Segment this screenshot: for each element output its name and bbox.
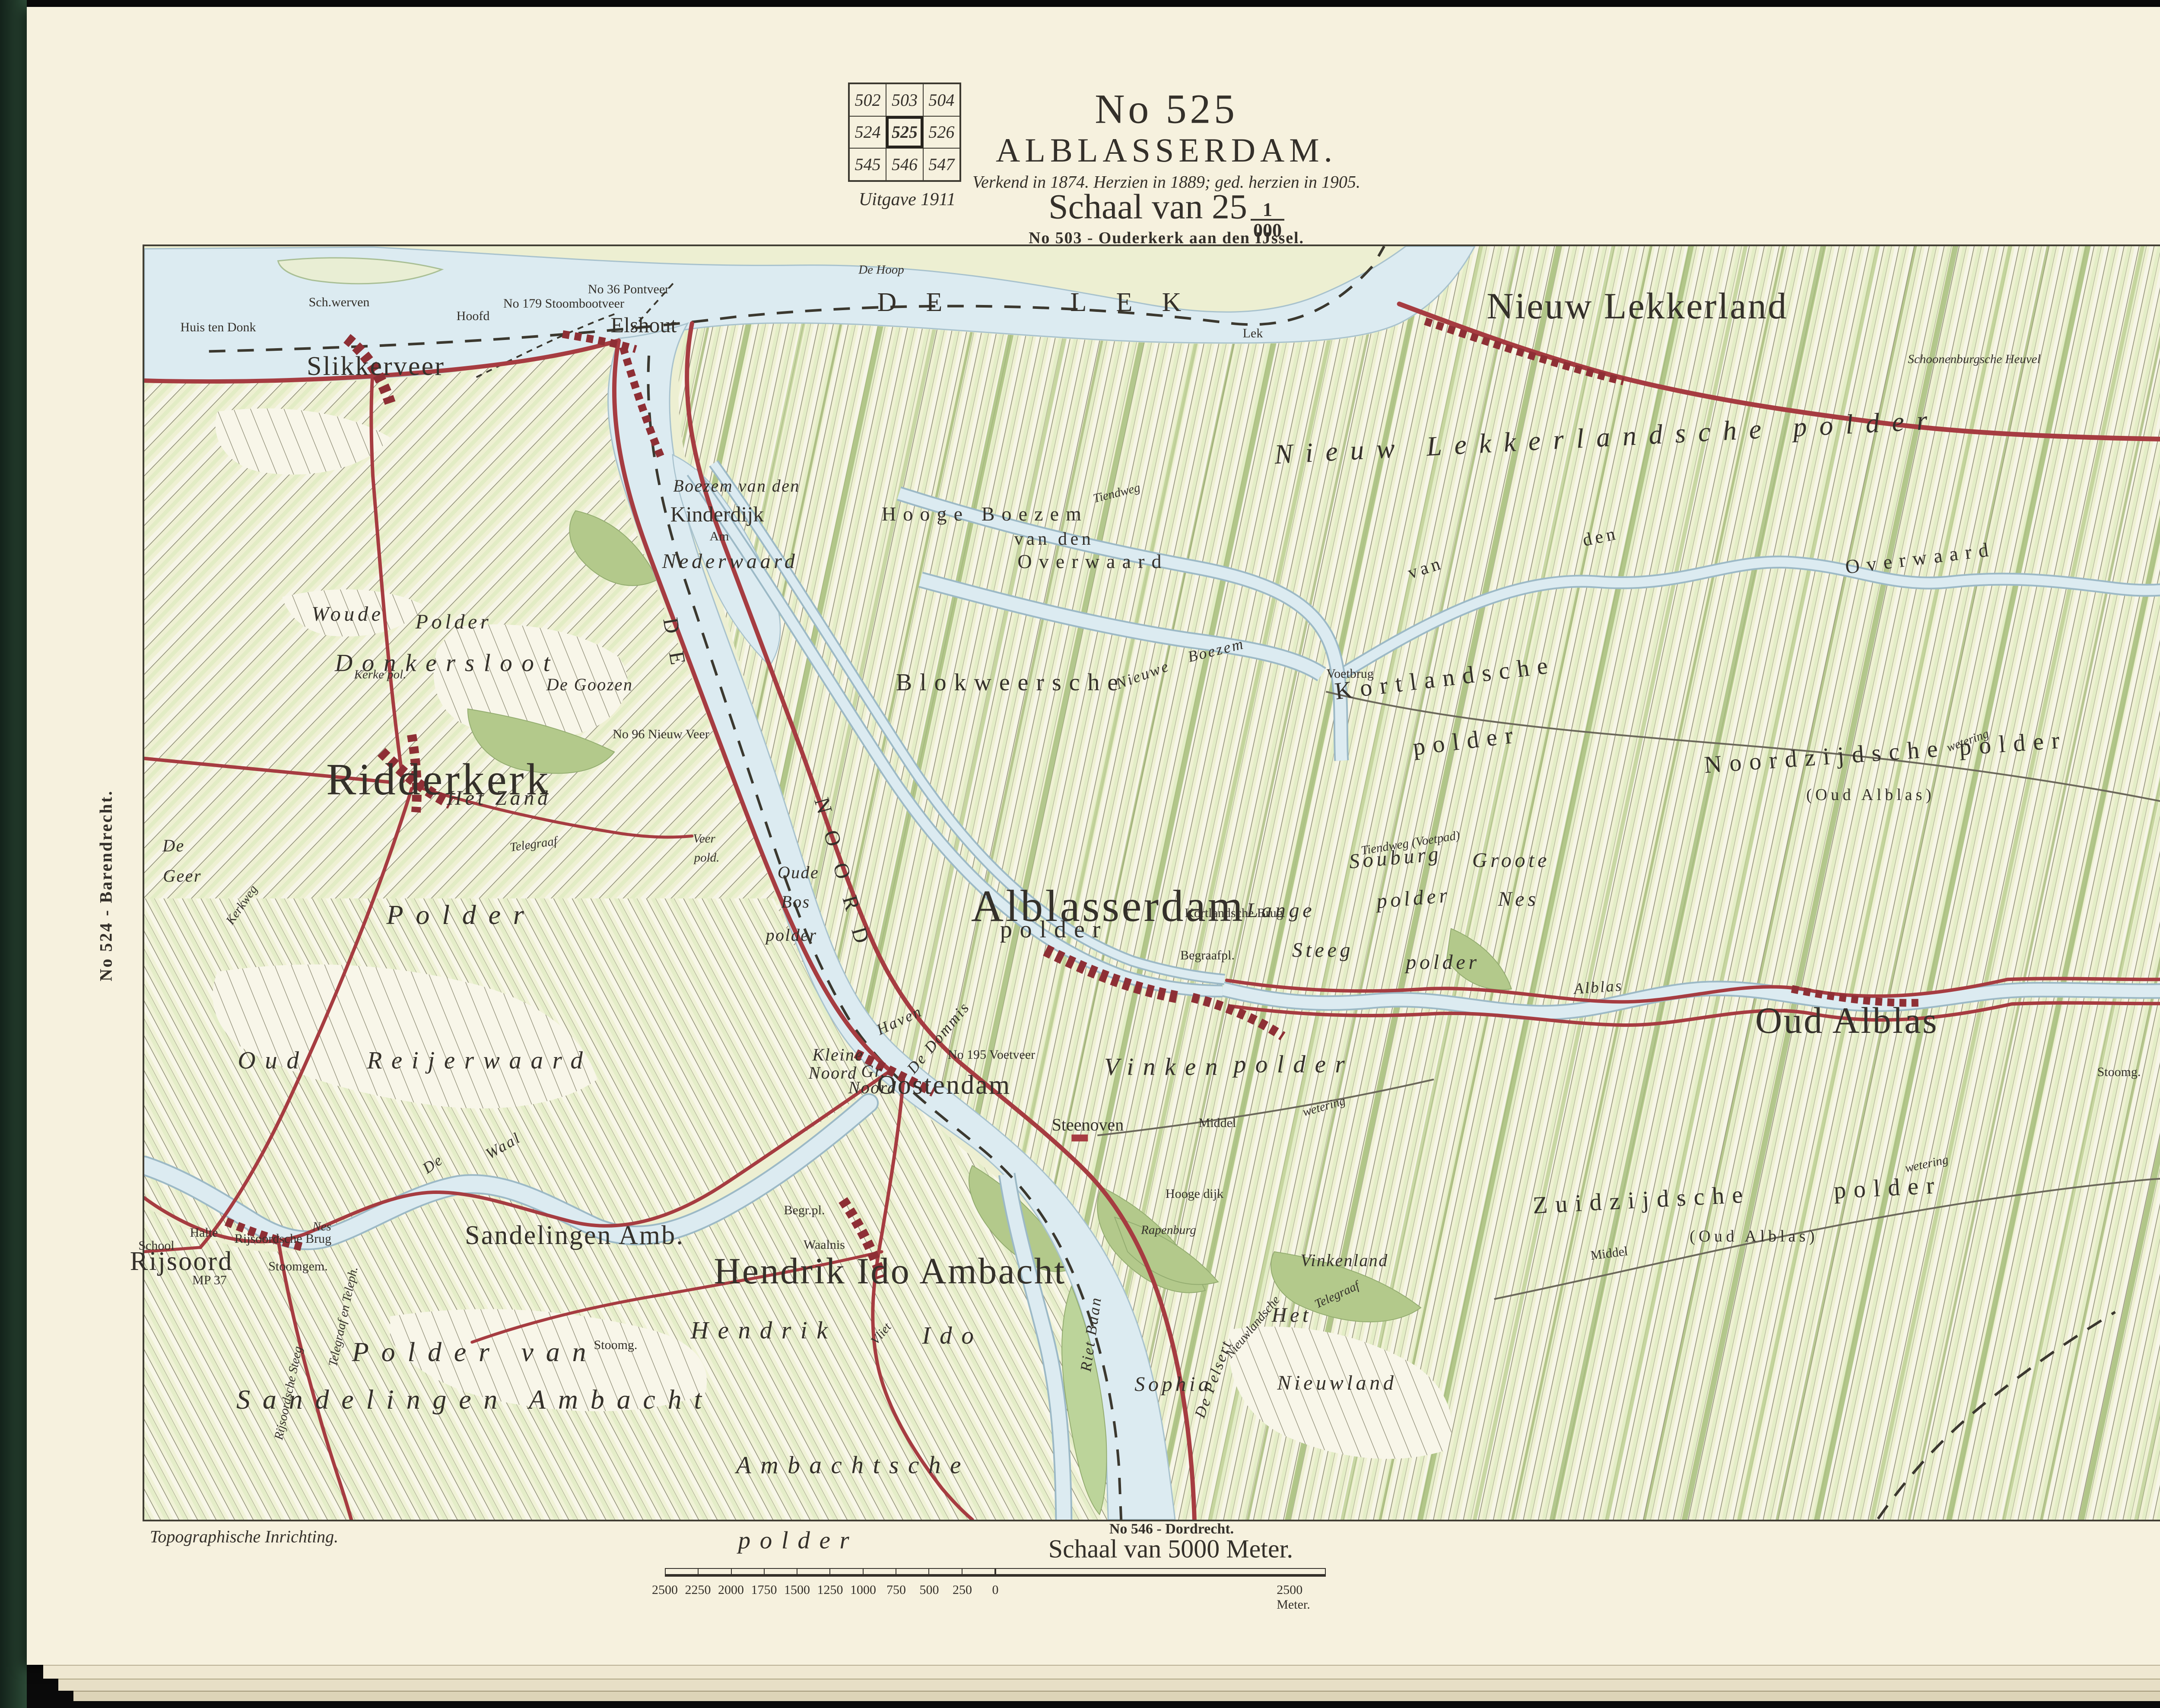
map-canvas [143, 244, 2160, 1521]
scale-bar-cell [830, 1569, 863, 1574]
sheet-grid-cell: 524 [849, 116, 886, 149]
sheet-grid-cell: 547 [923, 148, 960, 181]
book-cover-spine [0, 0, 27, 1708]
scale-bar-end-label: 2500 Meter. [1277, 1583, 1310, 1612]
scale-bar-cell [699, 1569, 731, 1574]
scale-bar-tick: 500 [920, 1583, 939, 1597]
scale-bar-cell [666, 1569, 699, 1574]
neighbor-sheet-left: No 524 - Barendrecht. [96, 790, 116, 981]
scale-bar-tick: 1000 [850, 1583, 876, 1597]
scanned-map-page: { "header": { "no": "No 525", "title": "… [0, 0, 2160, 1708]
scale-bar-cell [797, 1569, 830, 1574]
scale-bar-tick: 1500 [784, 1583, 810, 1597]
scale-bar-cell [732, 1569, 765, 1574]
scale-bar-tick: 2500 [652, 1583, 678, 1597]
sheet-grid-cell: 545 [849, 148, 886, 181]
sheet-grid-cell: 502 [849, 84, 886, 116]
map-artwork [144, 246, 2160, 1520]
sheet-number: No 525 [1095, 85, 1238, 133]
scale-bar-tick: 2250 [685, 1583, 711, 1597]
scale-text: Schaal van 25 [1048, 187, 1247, 226]
sheet-grid-cell: 503 [886, 84, 923, 116]
scale-bar-divided-section [665, 1568, 995, 1577]
bar-scale-title: Schaal van 5000 Meter. [1048, 1534, 1293, 1564]
scale-bar-tick: 250 [953, 1583, 972, 1597]
scale-bar-tick: 2000 [718, 1583, 744, 1597]
scale-bar-tick: 750 [886, 1583, 906, 1597]
edition-note: Uitgave 1911 [859, 189, 956, 210]
sheet-grid-cell: 504 [923, 84, 960, 116]
sheet-grid-cell: 546 [886, 148, 923, 181]
scale-bar-cell [896, 1569, 929, 1574]
scale-bar-tick: 0 [992, 1583, 999, 1597]
page-edge [43, 1665, 2160, 1679]
scale-bar-cell [962, 1569, 994, 1574]
scale-bar-tick: 1750 [751, 1583, 777, 1597]
scale-bar: 25002250200017501500125010007505002500 2… [665, 1568, 1326, 1598]
sheet-index-grid: 502503504524525526545546547 [848, 83, 961, 182]
scale-bar-plain-section [995, 1568, 1326, 1577]
scale-bar-cell [929, 1569, 962, 1574]
sheet-title: ALBLASSERDAM. [996, 131, 1337, 170]
scale-bar-cell [765, 1569, 797, 1574]
publisher-imprint: Topographische Inrichting. [150, 1527, 338, 1547]
page-edge [73, 1691, 2160, 1701]
sheet-grid-cell: 526 [923, 116, 960, 149]
scale-bar-tick: 1250 [817, 1583, 843, 1597]
scale-fraction-top: 1 [1263, 201, 1272, 219]
page-edge [58, 1679, 2160, 1691]
scale-bar-cell [864, 1569, 896, 1574]
sheet-grid-cell: 525 [886, 116, 923, 149]
